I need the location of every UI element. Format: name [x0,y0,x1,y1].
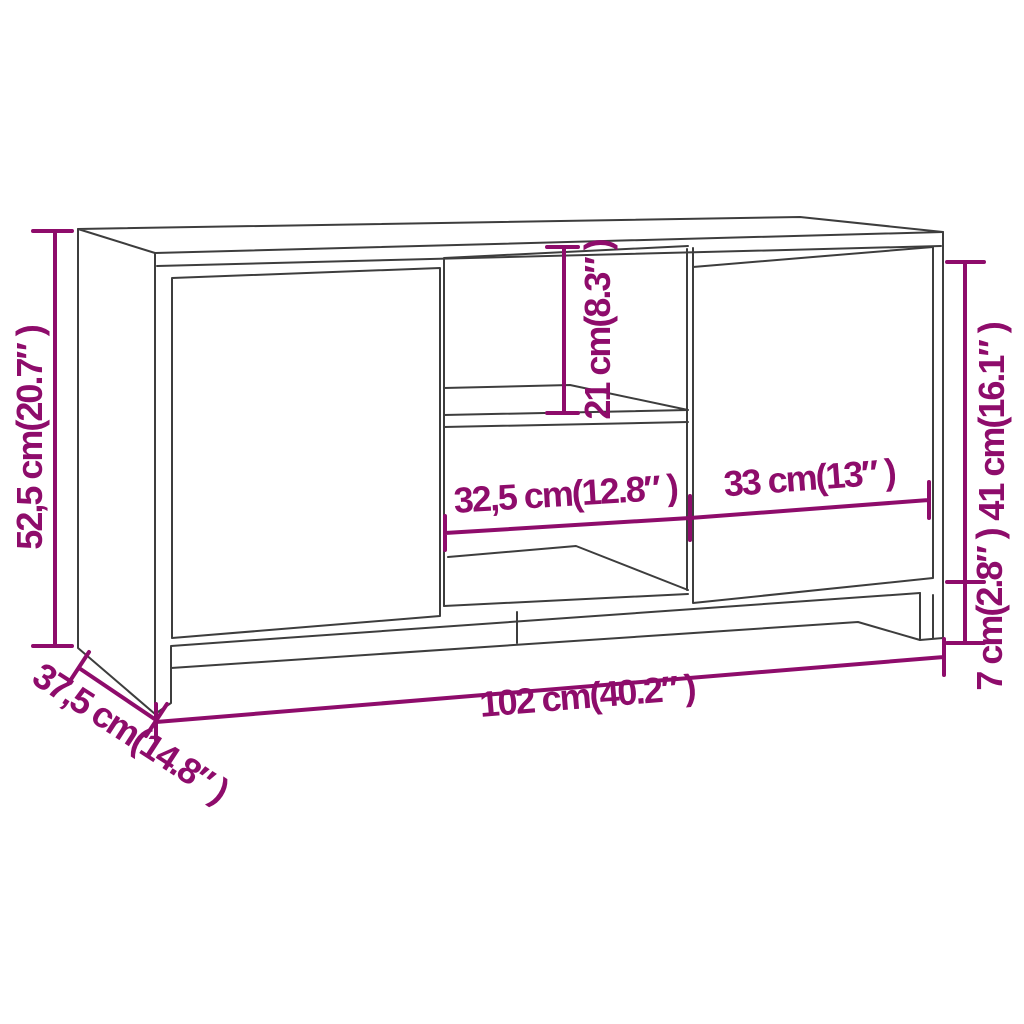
dim-depth: 37,5 cm(14.8″ ) [26,652,237,811]
dim-door-height-label: 41 cm(16.1″ ) [971,322,1012,520]
left-door [172,268,440,638]
cabinet-left-side-panel [78,229,155,714]
furniture-dimension-diagram: 52,5 cm(20.7″ ) 37,5 cm(14.8″ ) 102 cm(4… [0,0,1024,1024]
right-leg [920,593,943,640]
dim-compartment-height: 21 cm(8.3″ ) [547,239,618,419]
dim-door-width: 33 cm(13″ ) [690,451,929,518]
right-door [693,247,933,603]
dim-overall-width-label: 102 cm(40.2″ ) [478,666,697,725]
cabinet-top-panel [78,217,943,253]
dim-compartment-width-label: 32,5 cm(12.8″ ) [452,466,678,521]
dim-compartment-width: 32,5 cm(12.8″ ) [445,466,690,550]
dim-base-height-label: 7 cm(2.8″ ) [969,528,1010,690]
base-rail [171,593,920,668]
dim-depth-label: 37,5 cm(14.8″ ) [26,654,237,811]
dimension-diagram-page: 52,5 cm(20.7″ ) 37,5 cm(14.8″ ) 102 cm(4… [0,0,1024,1024]
dim-compartment-height-label: 21 cm(8.3″ ) [577,239,618,419]
dim-base-height: 7 cm(2.8″ ) [947,528,1010,690]
dim-door-width-label: 33 cm(13″ ) [722,451,897,505]
dim-compartment-height-line [547,247,578,413]
dim-overall-width: 102 cm(40.2″ ) [156,639,944,740]
dim-overall-height-label: 52,5 cm(20.7″ ) [9,325,50,549]
dimension-annotations: 52,5 cm(20.7″ ) 37,5 cm(14.8″ ) 102 cm(4… [9,231,1012,811]
compartment-floor [444,546,688,606]
dim-overall-height: 52,5 cm(20.7″ ) [9,231,72,646]
